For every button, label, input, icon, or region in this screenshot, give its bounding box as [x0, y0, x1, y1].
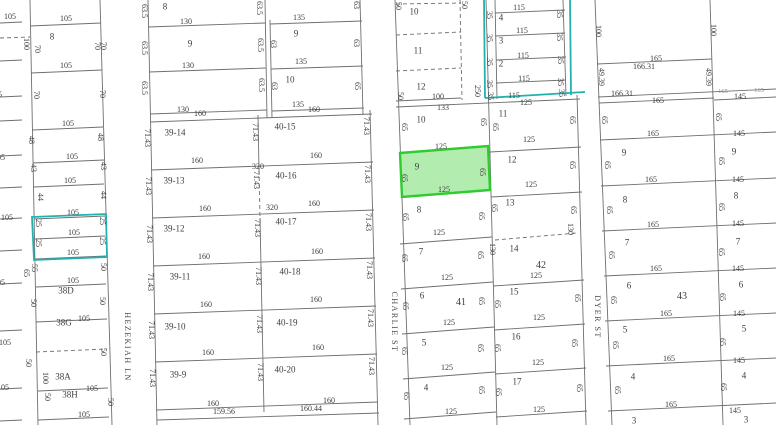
dimension-label: 166.31: [611, 90, 633, 98]
dimension-label: 105: [78, 411, 90, 419]
dimension-label: 71.43: [146, 273, 154, 291]
dimension-label: 71.43: [367, 357, 375, 375]
parcel-id-label: 10: [286, 76, 295, 85]
dashed-boundary-line: [396, 3, 461, 4]
dimension-label: 160: [308, 106, 320, 114]
dimension-label: 160: [199, 205, 211, 213]
dimension-label: 65: [479, 118, 487, 126]
dimension-label: 125: [441, 364, 453, 372]
dimension-label: 160: [310, 296, 322, 304]
dimension-label: 70: [32, 91, 40, 99]
parcel-boundary-line: [265, 0, 267, 118]
dimension-label: 65: [477, 212, 485, 220]
dimension-label: 63.5: [256, 38, 264, 52]
dimension-label: 130: [177, 106, 189, 114]
dimension-label: 50: [99, 348, 107, 356]
dashed-boundary-line: [495, 233, 577, 240]
parcel-id-label: 15: [510, 288, 519, 297]
dimension-label: 105: [86, 385, 98, 393]
dimension-label: 130: [488, 243, 496, 255]
parcel-id-label: 6: [627, 282, 632, 291]
teal-boundary-line: [485, 92, 585, 98]
dimension-label: 65: [493, 344, 501, 352]
parcel-id-label: 39-12: [164, 225, 185, 234]
dimension-label: 70: [33, 45, 41, 53]
parcel-boundaries-group: [0, 0, 776, 425]
dimension-label: 65: [717, 157, 725, 165]
dimension-label: 165: [660, 310, 672, 318]
block-number-label: 42: [536, 261, 546, 271]
dimension-label: 49.39: [597, 68, 605, 86]
parcel-id-label: 17: [513, 378, 522, 387]
dimension-label: 65: [400, 347, 408, 355]
dimension-label: 43: [29, 164, 37, 172]
dimension-label: 160: [202, 349, 214, 357]
dimension-label: 35: [556, 78, 564, 86]
dimension-label: 35: [555, 33, 563, 41]
dimension-label: 105: [67, 249, 79, 257]
dimension-label: 65: [575, 384, 583, 392]
map-lines-layer: [0, 0, 776, 425]
dimension-label: 160: [198, 253, 210, 261]
dimension-label: 35: [485, 34, 493, 42]
street-name-label: DYER ST: [593, 295, 601, 339]
dimension-label: 50: [394, 2, 402, 10]
dimension-label: 50: [396, 92, 404, 100]
parcel-id-label: 9: [188, 40, 193, 49]
dimension-label: 125: [441, 274, 453, 282]
parcel-id-label: 38A: [55, 373, 71, 382]
dimension-label: 65: [613, 386, 621, 394]
parcel-boundary-line: [495, 368, 586, 374]
dimension-label: 65: [605, 206, 613, 214]
parcel-boundary-line: [150, 110, 267, 114]
dimension-label: 125: [530, 272, 542, 280]
parcel-id-label: 12: [508, 156, 517, 165]
dimension-label: 160: [308, 200, 320, 208]
dimension-label: 65: [609, 296, 617, 304]
dimension-label: 165: [645, 176, 657, 184]
dimension-label: 50: [24, 359, 32, 367]
parcel-id-label: 4: [742, 372, 747, 381]
parcel-boundary-line: [605, 313, 776, 321]
dimension-label: 71.43: [365, 261, 373, 279]
parcel-id-label: 9: [294, 30, 299, 39]
dimension-label: 105: [66, 153, 78, 161]
parcel-boundary-line: [401, 282, 493, 289]
dimension-label: 65: [491, 123, 499, 131]
parcel-id-label: 39-10: [165, 323, 186, 332]
dimension-label: 71.43: [254, 267, 262, 285]
parcel-id-label: 5: [623, 326, 628, 335]
dimension-label: 145: [734, 93, 746, 101]
dimension-label: 65: [717, 203, 725, 211]
dimension-label: 71.43: [143, 129, 151, 147]
parcel-boundary-line: [602, 223, 776, 231]
block-number-label: 43: [677, 292, 687, 302]
dimension-label: 160: [200, 301, 212, 309]
dimension-label: 65: [400, 254, 408, 262]
dimension-label: 71.43: [252, 171, 260, 189]
parcel-id-label: 5: [742, 325, 747, 334]
parcel-id-label: 9: [415, 163, 420, 172]
dimension-label: 160.44: [300, 405, 322, 413]
dimension-label: 44: [99, 191, 107, 199]
dimension-label: 160: [312, 344, 324, 352]
dimension-label: 65: [717, 248, 725, 256]
dimension-label: 50: [43, 393, 51, 401]
dimension-label: 63.5: [140, 4, 148, 18]
parcel-boundary-line: [271, 66, 363, 69]
dimension-label: 63.5: [140, 41, 148, 55]
parcel-id-label: 7: [419, 248, 424, 257]
parcel-id-label: 8: [417, 206, 422, 215]
parcel-boundary-line: [608, 403, 776, 411]
parcel-boundary-line: [360, 0, 363, 115]
parcel-id-label: 40-18: [280, 268, 301, 277]
dimension-label: 65: [714, 113, 722, 121]
dimension-label: 71.43: [148, 369, 156, 387]
dimension-label: 65: [718, 338, 726, 346]
parcel-id-label: 11: [414, 47, 423, 56]
dimension-label: 71.43: [255, 315, 263, 333]
dimension-label: 48: [27, 136, 35, 144]
dimension-label: 65: [400, 123, 408, 131]
street-name-label: CHARLIE ST: [390, 292, 398, 353]
street-name-label: HEZEKIAH LN: [123, 312, 131, 382]
dimension-label: 130: [182, 62, 194, 70]
dimension-label: 49.39: [704, 68, 712, 86]
dimension-label: 125: [532, 359, 544, 367]
dimension-label: 50: [29, 299, 37, 307]
parcel-boundary-line: [495, 0, 497, 99]
parcel-boundary-line: [490, 147, 581, 152]
dimension-label: 145: [732, 220, 744, 228]
dimension-label: 160: [191, 157, 203, 165]
dimension-label: 35: [556, 56, 564, 64]
dimension-label: 105: [60, 62, 72, 70]
dimension-label: 100: [432, 93, 444, 101]
dashed-boundary-line: [396, 32, 461, 35]
dimension-label: 35: [485, 58, 493, 66]
dimension-label: 105: [0, 384, 9, 392]
dimension-label: 65: [718, 293, 726, 301]
dimension-label: 65: [476, 251, 484, 259]
dimension-label: 100: [709, 24, 717, 36]
parcel-boundary-line: [270, 21, 362, 24]
parcel-id-label: 7: [736, 238, 741, 247]
dimension-label-small: 165: [718, 89, 728, 96]
parcel-boundary-line: [0, 22, 22, 23]
dimension-label: 65: [493, 300, 501, 308]
dimension-label: 65: [478, 168, 486, 176]
dimension-label: 25: [98, 217, 106, 225]
dimension-label: 125: [533, 406, 545, 414]
dimension-label: 130: [180, 18, 192, 26]
dimension-label: 71.43: [251, 123, 259, 141]
parcel-boundary-line: [31, 70, 102, 73]
parcel-boundary-line: [396, 99, 580, 107]
dimension-label: 63.5: [257, 78, 265, 92]
dimension-label: 133: [437, 104, 449, 112]
dimension-label: 65: [611, 341, 619, 349]
parcel-boundary-line: [577, 95, 586, 425]
dimension-label: 165: [647, 130, 659, 138]
dimension-label: 115: [508, 92, 520, 100]
dimension-label: 145: [732, 265, 744, 273]
parcel-id-label: 4: [499, 14, 504, 23]
dimension-label: 105: [4, 13, 16, 21]
dimension-label: 320: [252, 163, 264, 171]
dimension-label: 145: [733, 310, 745, 318]
parcel-boundary-line: [0, 420, 22, 421]
dimension-label: 160: [311, 248, 323, 256]
dimension-label: 65: [477, 297, 485, 305]
parcel-id-label: 40-19: [277, 319, 298, 328]
parcel-boundary-line: [38, 417, 109, 420]
parcel-id-label: 8: [623, 196, 628, 205]
dimension-label: 105: [62, 120, 74, 128]
dimension-label: 125: [525, 181, 537, 189]
parcel-boundary-line: [0, 187, 22, 188]
dimension-label: 165: [663, 355, 675, 363]
dimension-label: 71.43: [253, 219, 261, 237]
parcel-id-label: 3: [632, 417, 637, 425]
dimension-label: 115: [517, 52, 529, 60]
parcel-boundary-line: [149, 68, 266, 72]
dimension-label: 165: [650, 265, 662, 273]
dimension-label: 65: [573, 294, 581, 302]
teal-boundary-line: [570, 0, 571, 95]
dimension-label: 63: [352, 1, 360, 9]
parcel-id-label: 6: [420, 292, 425, 301]
dimension-label: 145: [733, 357, 745, 365]
dimension-label: 25: [98, 237, 106, 245]
dimension-label: 125: [520, 99, 532, 107]
parcel-boundary-line: [100, 0, 112, 425]
block-number-label: 41: [456, 298, 466, 308]
parcel-boundary-line: [148, 0, 157, 425]
dimension-label: 65: [568, 161, 576, 169]
dimension-label: 105: [78, 315, 90, 323]
dimension-label: 71.43: [363, 165, 371, 183]
parcel-id-label: 40-20: [275, 366, 296, 375]
dimension-label: 71.43: [256, 363, 264, 381]
dimension-label: 65: [490, 204, 498, 212]
dimension-label: 100: [594, 25, 602, 37]
dimension-label: 105: [67, 209, 79, 217]
parcel-id-label: 13: [506, 199, 515, 208]
dimension-label: 125: [433, 229, 445, 237]
parcel-boundary-line: [154, 306, 376, 314]
dashed-boundary-line: [460, 0, 462, 100]
parcel-boundary-line: [493, 280, 584, 286]
dimension-label: 125: [443, 319, 455, 327]
dimension-label: 115: [518, 75, 530, 83]
dimension-label: 65: [568, 116, 576, 124]
dimension-label: 35: [485, 11, 493, 19]
dimension-label: 166.31: [633, 63, 655, 71]
dimension-label: 35: [486, 92, 494, 100]
parcel-id-label: 10: [410, 8, 419, 17]
dimension-label: 35: [555, 10, 563, 18]
parcel-id-label: 16: [512, 333, 521, 342]
dimension-label: 65: [719, 383, 727, 391]
dimension-label: 105: [64, 177, 76, 185]
dimension-label: 65: [22, 269, 30, 277]
parcel-id-label: 9: [732, 148, 737, 157]
parcel-id-label: 6: [739, 281, 744, 290]
parcel-id-label: 39-14: [165, 129, 186, 138]
dashed-boundary-line: [36, 349, 107, 352]
parcel-boundary-line: [30, 23, 101, 26]
parcel-id-label: 2: [499, 60, 504, 69]
parcel-id-label: 39-11: [170, 273, 191, 282]
dashed-boundary-line: [396, 68, 461, 71]
parcel-boundary-line: [152, 210, 374, 218]
dimension-label: 105: [67, 277, 79, 285]
dimension-label: 65: [607, 251, 615, 259]
dimension-label: 100: [22, 38, 30, 50]
parcel-boundary-line: [153, 258, 375, 266]
parcel-boundary-line: [157, 413, 379, 420]
parcel-boundary-line: [0, 120, 22, 121]
dimension-label: 135: [292, 101, 304, 109]
dimension-label: 50: [98, 297, 106, 305]
dimension-label: 70: [98, 90, 106, 98]
dimension-label: 71.43: [362, 117, 370, 135]
dimension-label: 135: [295, 58, 307, 66]
dimension-label: 63: [270, 82, 278, 90]
parcel-boundary-line: [491, 192, 582, 197]
dimension-label: 125: [533, 314, 545, 322]
dimension-label: 105: [0, 279, 5, 287]
dimension-label: 70: [99, 42, 107, 50]
dimension-label-small: 165: [754, 88, 764, 95]
dimension-label: 105: [68, 229, 80, 237]
parcel-id-label: 40-16: [276, 172, 297, 181]
dimension-label: 63.5: [140, 81, 148, 95]
parcel-id-label: 40-17: [276, 218, 297, 227]
dimension-label: 145: [729, 407, 741, 415]
parcel-id-label: 8: [50, 33, 55, 42]
parcel-id-label: 8: [163, 3, 168, 12]
parcel-id-label: 39-9: [170, 371, 187, 380]
dimension-label: 35: [557, 89, 565, 97]
parcel-boundary-line: [0, 330, 22, 331]
dimension-label: 160: [323, 397, 335, 405]
parcel-id-label: 3: [499, 37, 504, 46]
parcel-id-label: 38H: [62, 391, 78, 400]
parcel-id-label: 5: [422, 339, 427, 348]
dimension-label: 63: [269, 40, 277, 48]
parcel-id-label: 39-13: [164, 177, 185, 186]
parcel-boundary-line: [606, 358, 776, 366]
parcel-id-label: 40-15: [275, 123, 296, 132]
parcel-boundary-line: [0, 250, 22, 251]
parcel-boundary-line: [0, 60, 22, 61]
dimension-label: 71.43: [366, 309, 374, 327]
dimension-label: 250: [473, 85, 481, 97]
dimension-label: 71.43: [364, 213, 372, 231]
parcel-id-label: 9: [622, 149, 627, 158]
dimension-label: 65: [569, 206, 577, 214]
parcel-boundary-line: [600, 132, 776, 140]
dimension-label: 105: [0, 339, 11, 347]
dimension-label: 71.43: [145, 225, 153, 243]
parcel-boundary-line: [403, 372, 495, 379]
parcel-map-canvas[interactable]: 1051051051051051051051007070707070105105…: [0, 0, 776, 425]
parcel-id-label: 8: [734, 192, 739, 201]
parcel-id-label: 11: [499, 110, 508, 119]
dimension-label: 320: [266, 204, 278, 212]
parcel-boundary-line: [150, 114, 372, 122]
dimension-label: 50: [106, 398, 114, 406]
parcel-boundary-line: [400, 237, 492, 244]
dimension-label: 105: [0, 91, 2, 99]
dimension-label: 65: [494, 388, 502, 396]
dimension-label: 25: [34, 239, 42, 247]
dimension-label: 50: [99, 263, 107, 271]
dimension-label: 35: [485, 80, 493, 88]
parcel-boundary-line: [402, 327, 494, 334]
dimension-label: 125: [445, 408, 457, 416]
parcel-boundary-line: [604, 268, 776, 276]
dimension-label: 63: [352, 39, 360, 47]
dimension-label: 55: [30, 264, 38, 272]
parcel-id-label: 4: [424, 384, 429, 393]
parcel-id-label: 38G: [56, 319, 72, 328]
parcel-id-label: 7: [625, 239, 630, 248]
dimension-label: 48: [96, 133, 104, 141]
dimension-label: 115: [513, 4, 525, 12]
dimension-label: 160: [310, 152, 322, 160]
dimension-label: 65: [476, 344, 484, 352]
dimension-label: 125: [435, 143, 447, 151]
dimension-label: 65: [603, 161, 611, 169]
parcel-boundary-line: [396, 98, 461, 101]
dimension-label: 65: [600, 116, 608, 124]
dimension-label: 145: [733, 130, 745, 138]
dimension-label: 130: [566, 223, 574, 235]
dimension-label: 165: [647, 221, 659, 229]
dimension-label: 65: [477, 386, 485, 394]
parcel-id-label: 14: [510, 245, 519, 254]
dimension-label: 115: [516, 27, 528, 35]
dimension-label: 125: [438, 186, 450, 194]
dimension-label: 43: [99, 162, 107, 170]
dimension-label: 135: [293, 14, 305, 22]
dimension-label: 71.43: [144, 177, 152, 195]
dimension-label: 25: [34, 219, 42, 227]
dimension-label: 100: [41, 372, 49, 384]
dimension-label: 50: [460, 1, 468, 9]
parcel-id-label: 3: [744, 416, 749, 425]
dimension-label: 165: [652, 97, 664, 105]
parcel-id-label: 4: [631, 373, 636, 382]
dimension-label: 65: [402, 392, 410, 400]
dimension-label: 145: [732, 176, 744, 184]
dimension-label: 105: [0, 154, 5, 162]
parcel-boundary-line: [148, 23, 265, 27]
dimension-label: 44: [36, 193, 44, 201]
parcel-id-label: 10: [417, 116, 426, 125]
parcel-id-label: 12: [417, 83, 426, 92]
dimension-label: 65: [353, 82, 361, 90]
parcel-boundary-line: [0, 96, 22, 97]
dimension-label: 125: [523, 136, 535, 144]
dimension-label: 71.43: [147, 321, 155, 339]
